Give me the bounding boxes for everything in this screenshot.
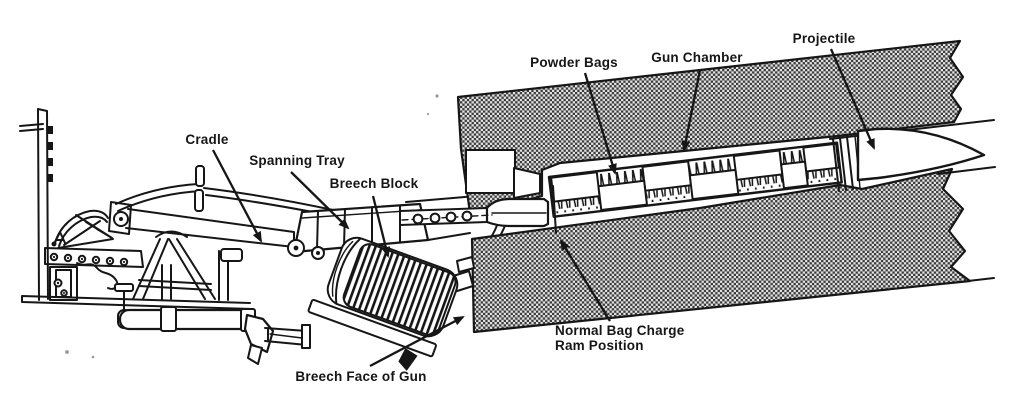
- label-ram-position: Normal Bag Charge Ram Position: [555, 323, 684, 353]
- rammer-roller: [414, 215, 423, 224]
- forcing-cone: [514, 168, 540, 198]
- base-rail: [22, 296, 252, 309]
- line-art: [0, 0, 1024, 419]
- rammer-roller: [463, 212, 472, 221]
- breech-recess: [466, 150, 515, 193]
- upper-arm: [116, 184, 200, 211]
- rammer-roller: [447, 213, 456, 222]
- a-frame: [133, 232, 215, 300]
- label-projectile: Projectile: [793, 31, 856, 46]
- diagram-canvas: Cradle Spanning Tray Breech Block Powder…: [0, 0, 1024, 419]
- recoil-cylinder: [120, 310, 250, 329]
- label-ram-position-line1: Normal Bag Charge: [555, 323, 684, 338]
- label-powder-bags: Powder Bags: [530, 55, 618, 70]
- label-breech-face: Breech Face of Gun: [295, 369, 426, 384]
- label-gun-chamber: Gun Chamber: [651, 50, 742, 65]
- label-cradle: Cradle: [185, 132, 228, 147]
- label-spanning-tray: Spanning Tray: [249, 153, 345, 168]
- projectile-drawing: [858, 129, 984, 180]
- mount-wall-bracket: [20, 124, 43, 131]
- mount-wall-post: [38, 109, 48, 300]
- gun-mount-drawing: [20, 109, 339, 364]
- arm-pin: [196, 166, 204, 186]
- arm-pin: [195, 190, 203, 211]
- trail-hook: [248, 345, 262, 364]
- label-ram-position-line2: Ram Position: [555, 338, 684, 353]
- rammer-roller: [431, 214, 440, 223]
- cradle-beam: [126, 209, 294, 247]
- label-breech-block: Breech Block: [330, 176, 419, 191]
